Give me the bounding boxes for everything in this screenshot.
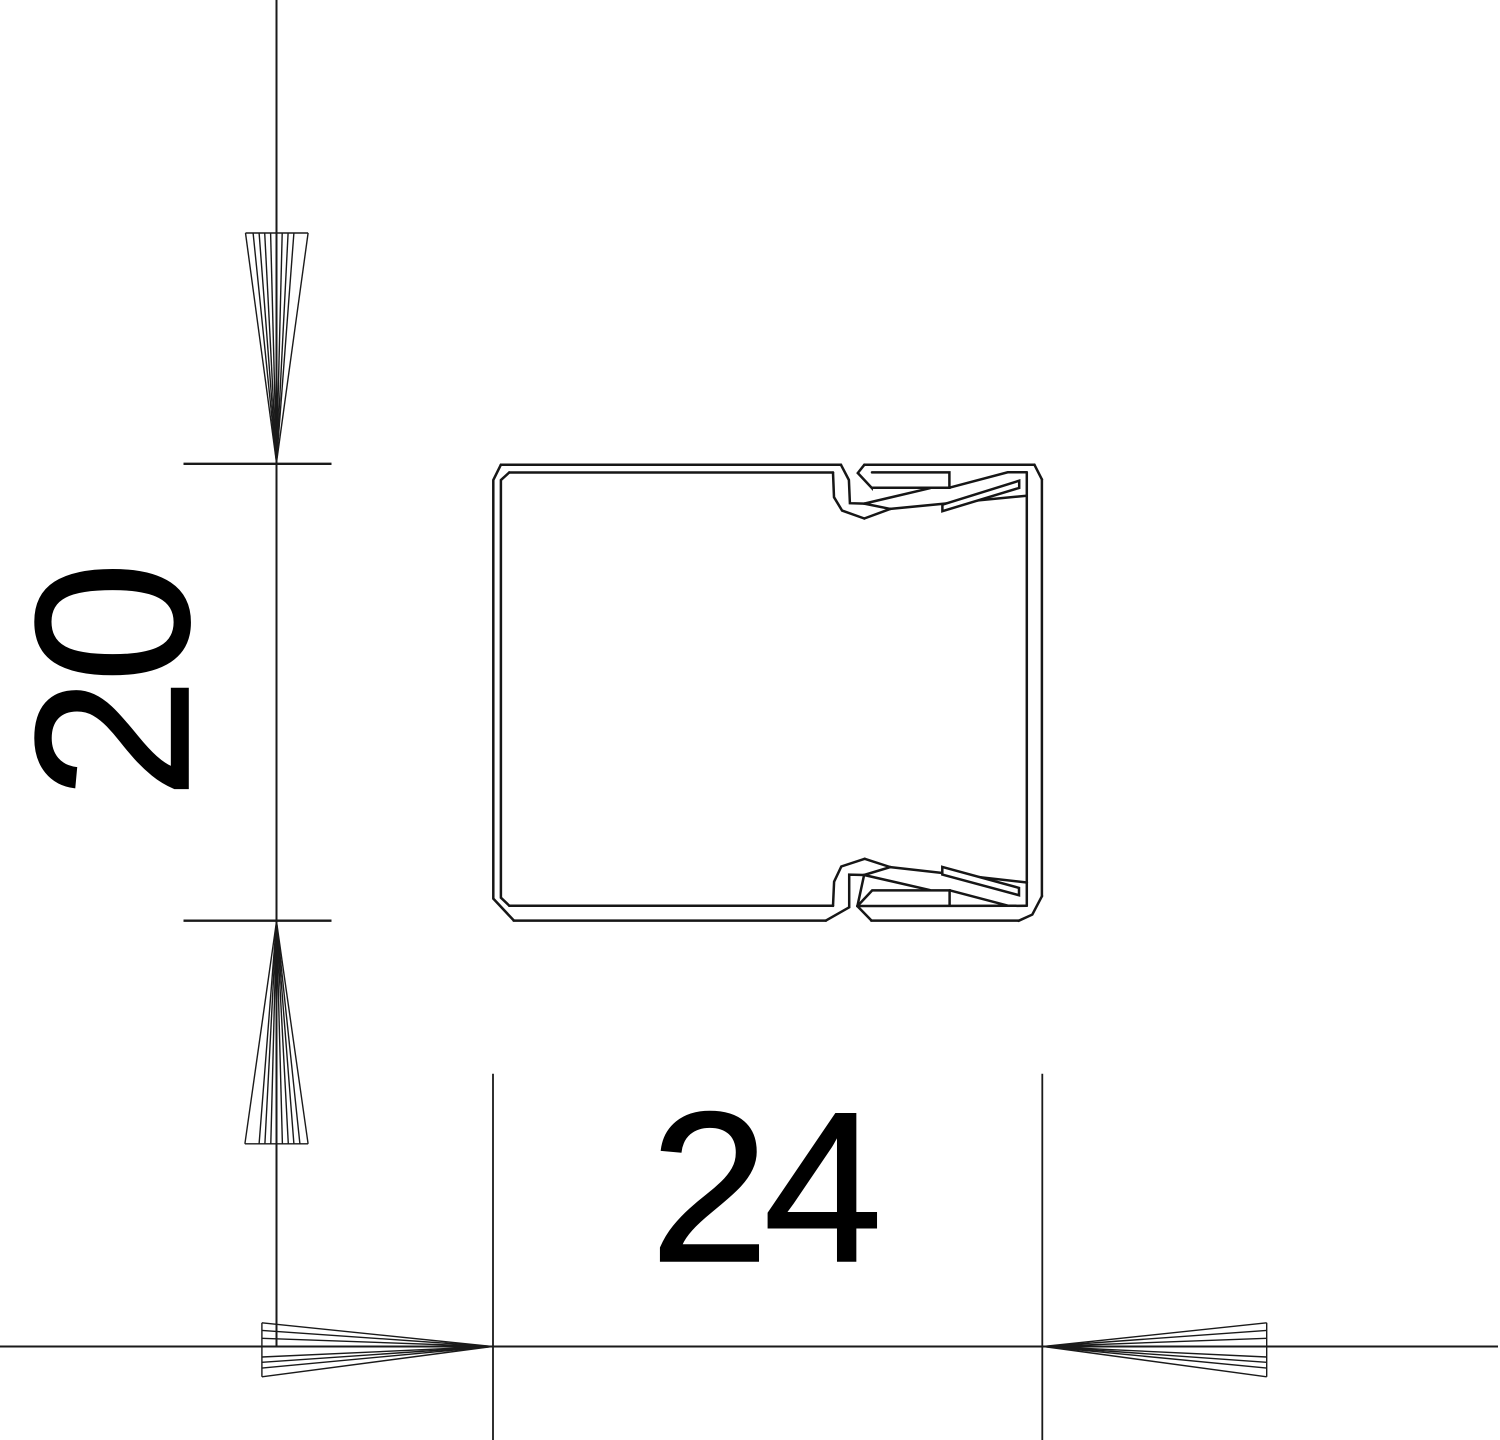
svg-text:24: 24 — [650, 1068, 877, 1307]
svg-text:20: 20 — [0, 567, 235, 800]
